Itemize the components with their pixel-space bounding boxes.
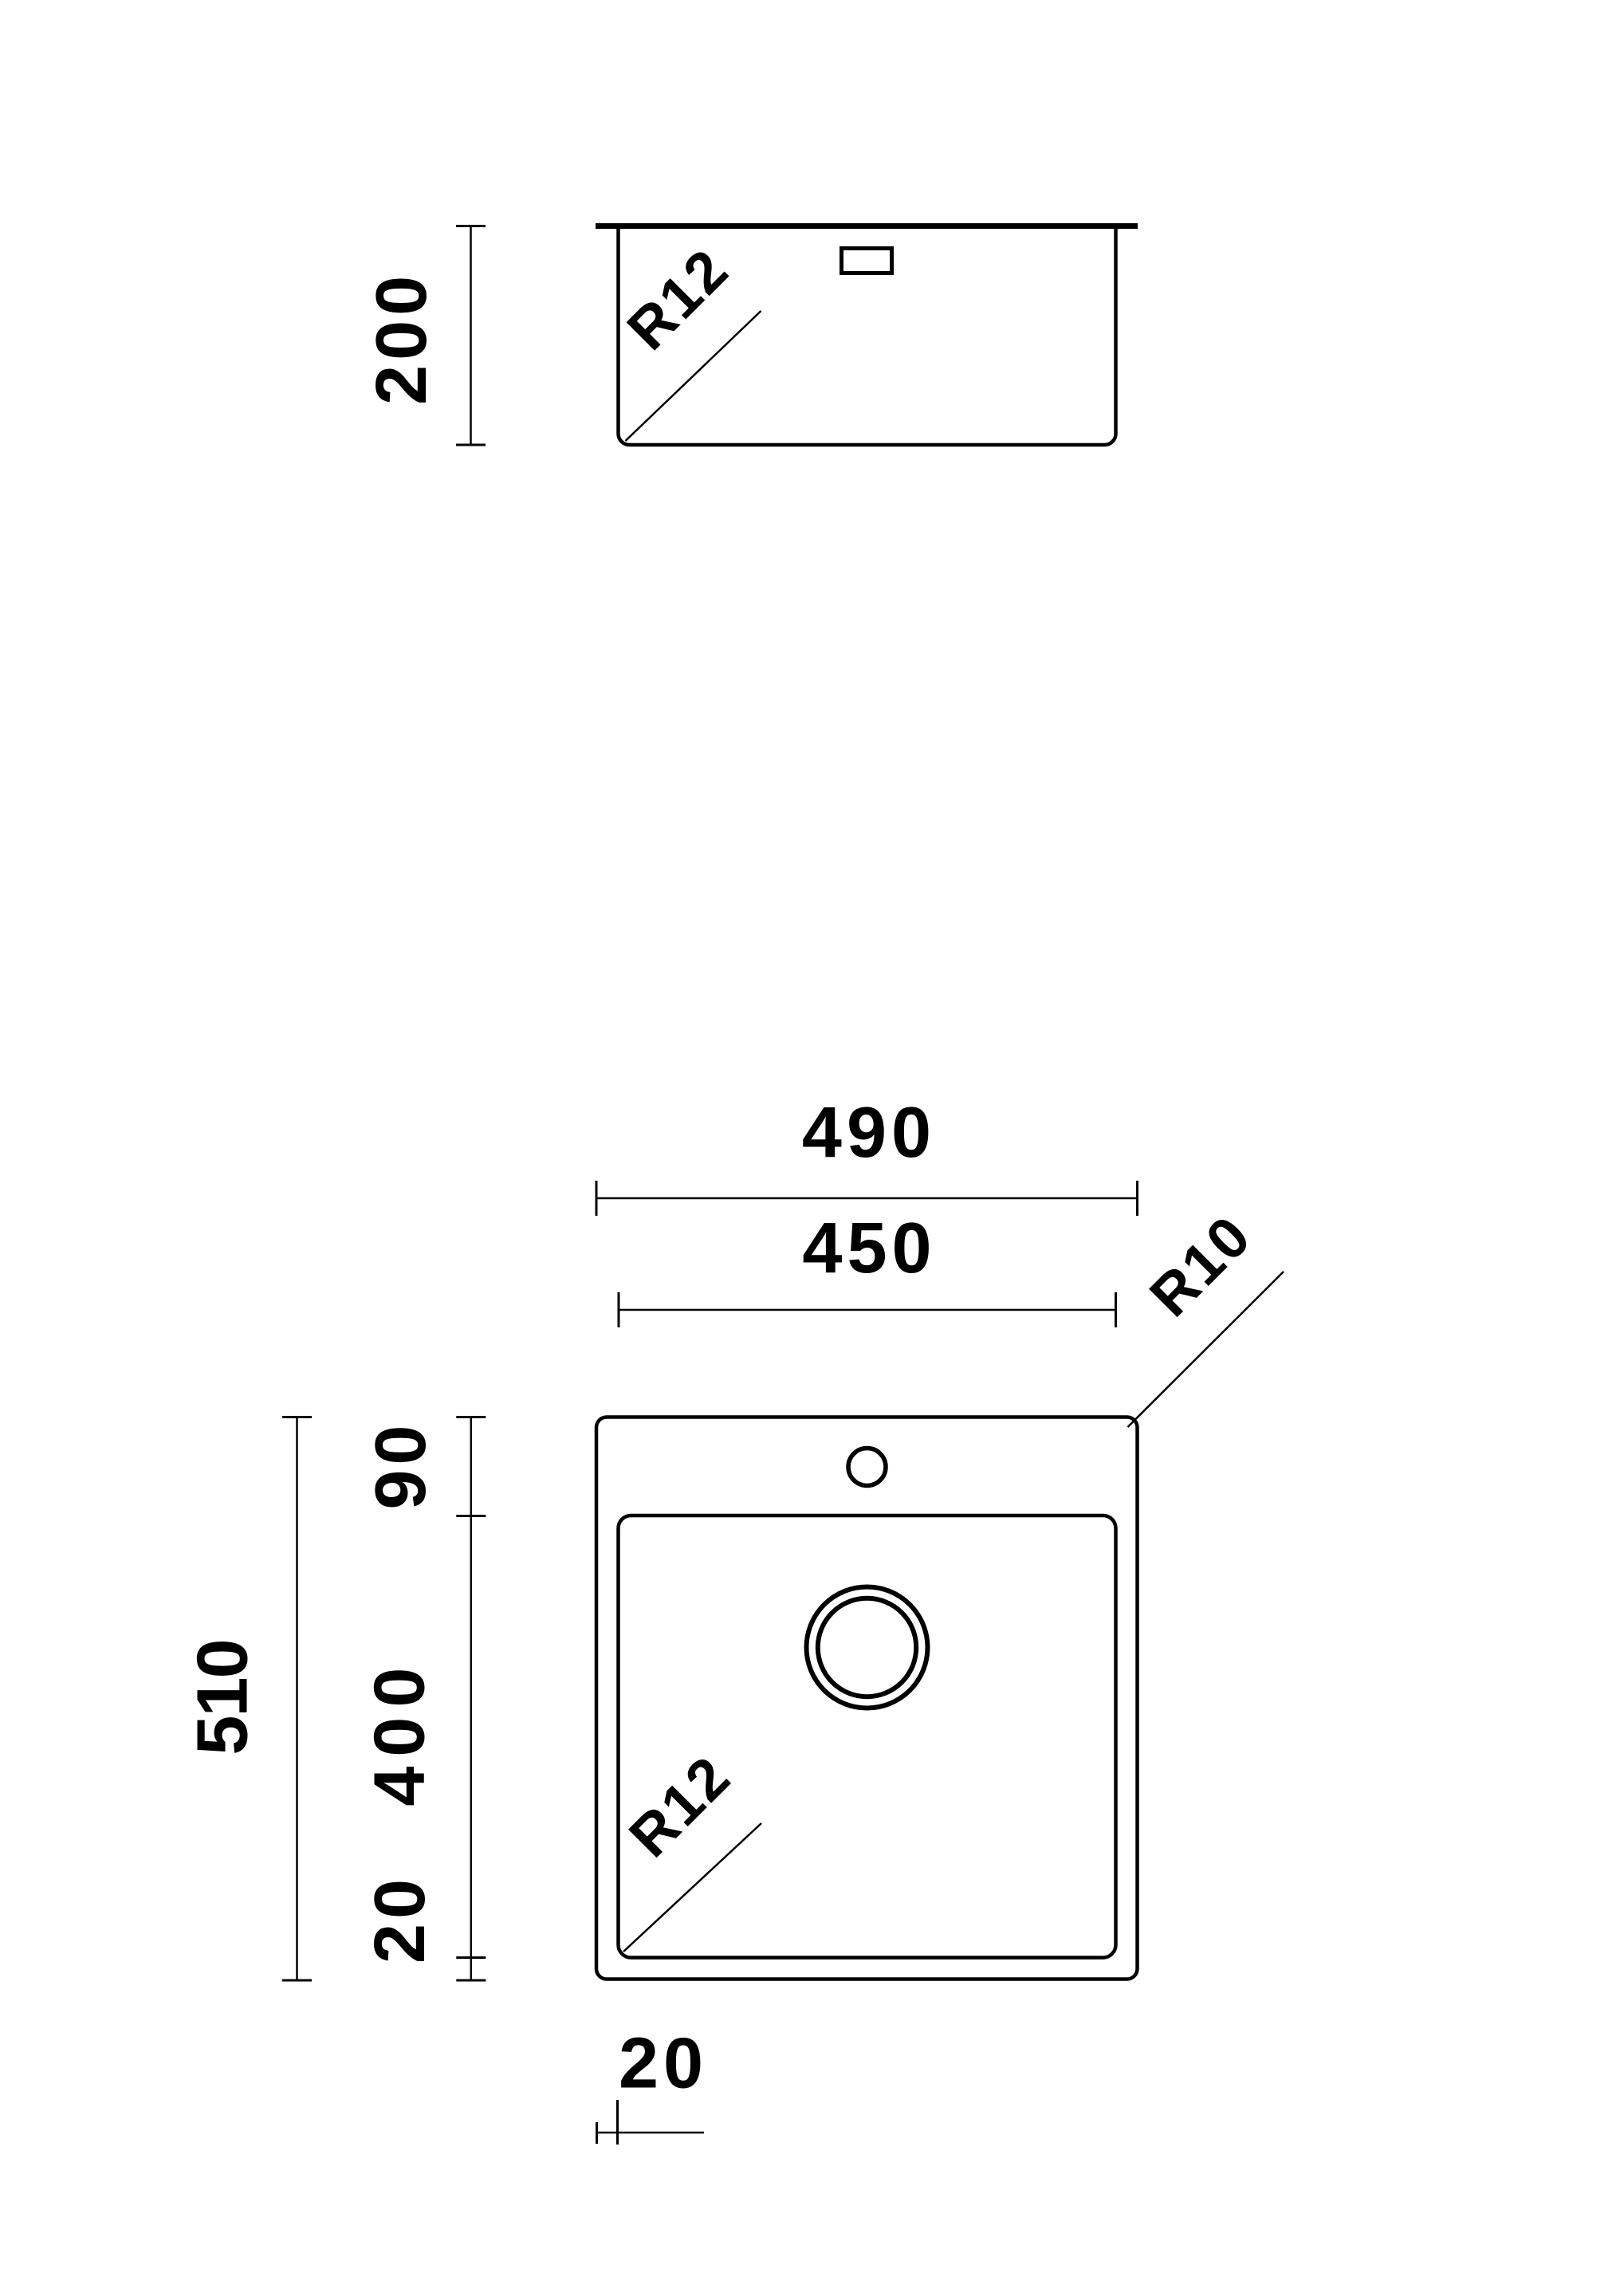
svg-text:20: 20 [619,2024,708,2104]
svg-text:20: 20 [360,1874,440,1964]
svg-text:490: 490 [802,1093,936,1173]
svg-text:450: 450 [802,1209,936,1288]
svg-text:200: 200 [362,271,442,405]
svg-text:400: 400 [360,1658,440,1807]
svg-text:510: 510 [183,1640,263,1755]
svg-text:90: 90 [361,1421,441,1510]
